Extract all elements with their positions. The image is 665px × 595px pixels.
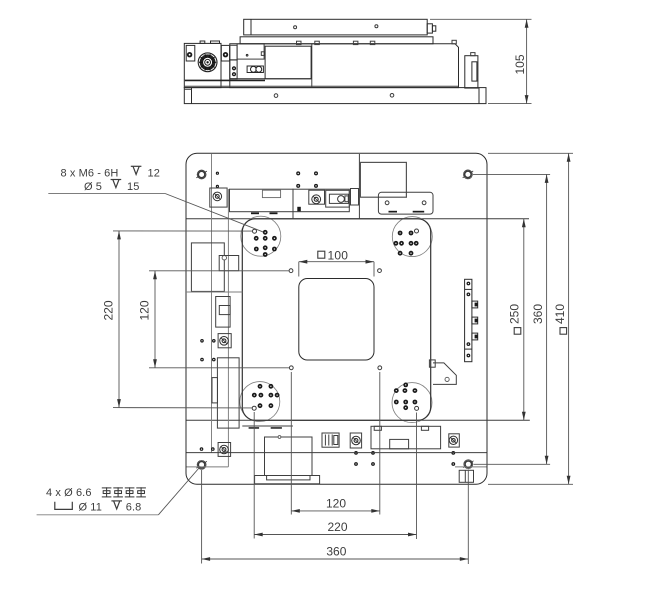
svg-text:120: 120: [326, 496, 346, 510]
svg-text:220: 220: [327, 520, 347, 534]
svg-text:Ø 11: Ø 11: [79, 501, 102, 513]
svg-text:410: 410: [553, 304, 567, 324]
svg-text:6.8: 6.8: [126, 501, 142, 513]
svg-text:250: 250: [508, 304, 522, 324]
svg-text:4 x Ø 6.6: 4 x Ø 6.6: [46, 487, 92, 499]
svg-text:105: 105: [513, 54, 527, 74]
svg-text:360: 360: [326, 545, 346, 559]
svg-text:220: 220: [102, 300, 116, 320]
svg-text:Ø 5: Ø 5: [84, 181, 102, 193]
svg-text:8 x M6 - 6H: 8 x M6 - 6H: [61, 168, 119, 180]
svg-text:120: 120: [138, 300, 152, 320]
svg-text:15: 15: [127, 181, 139, 193]
svg-text:12: 12: [148, 168, 160, 180]
svg-text:100: 100: [328, 248, 349, 262]
svg-text:360: 360: [531, 304, 545, 324]
